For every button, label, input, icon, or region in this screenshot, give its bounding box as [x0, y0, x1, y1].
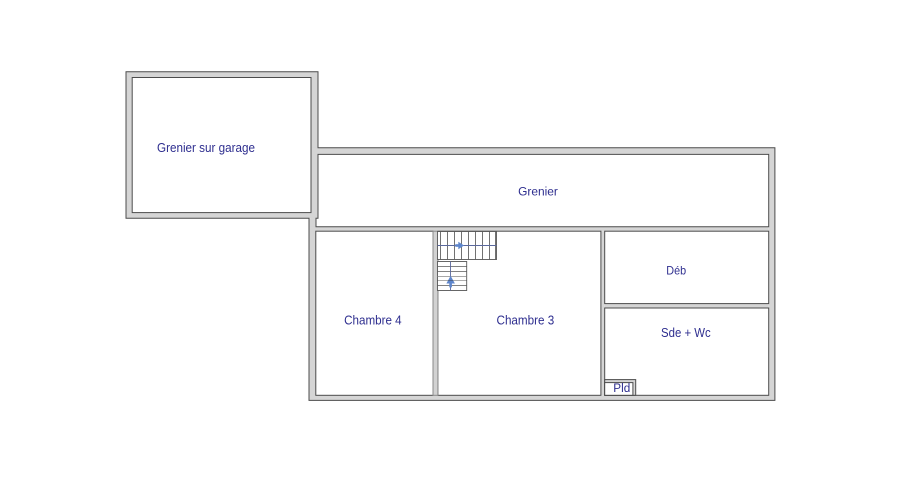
svg-text:Déb: Déb	[666, 264, 686, 277]
svg-text:Grenier sur garage: Grenier sur garage	[157, 140, 255, 155]
svg-text:Chambre 3: Chambre 3	[497, 313, 555, 328]
svg-text:Pld: Pld	[613, 381, 630, 395]
svg-text:Chambre 4: Chambre 4	[344, 313, 402, 328]
svg-text:Grenier: Grenier	[518, 185, 558, 199]
svg-text:Sde + Wc: Sde + Wc	[661, 326, 711, 340]
